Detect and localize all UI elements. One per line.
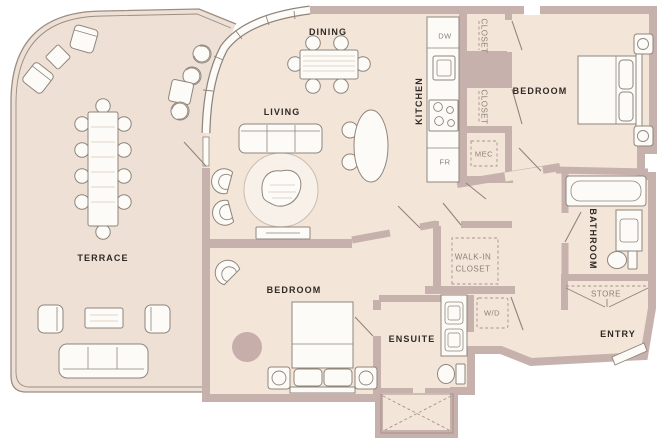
label-dishwasher: DW xyxy=(438,32,452,41)
floor-plan-drawing xyxy=(0,0,670,442)
label-store: STORE xyxy=(591,290,621,299)
kitchen-sink xyxy=(433,56,455,80)
label-living: LIVING xyxy=(264,107,301,117)
dining-table xyxy=(300,50,358,79)
label-closet-upper: CLOSET xyxy=(480,18,489,53)
label-bathroom: BATHROOM xyxy=(588,208,598,269)
label-washer-dryer: W/D xyxy=(484,309,500,318)
floor-plan-page: TERRACE DINING LIVING KITCHEN DW FR CLOS… xyxy=(0,0,670,442)
bedroom-upper-door-gap xyxy=(505,171,543,177)
top-wall-notch xyxy=(524,4,540,15)
kitchen-cooktop xyxy=(429,100,458,131)
label-walk-in-closet: WALK-IN CLOSET xyxy=(444,251,502,274)
bedroom-lower-rug xyxy=(232,332,262,362)
label-bedroom-lower: BEDROOM xyxy=(267,285,322,295)
label-entry: ENTRY xyxy=(600,329,636,339)
label-mec: MEC xyxy=(475,150,493,159)
label-kitchen: KITCHEN xyxy=(414,77,424,125)
ensuite-toilet xyxy=(438,364,466,384)
bed-lower xyxy=(292,302,353,368)
terrace-table xyxy=(88,112,118,226)
label-dining: DINING xyxy=(309,27,347,37)
label-terrace: TERRACE xyxy=(77,253,128,263)
label-closet-lower: CLOSET xyxy=(480,89,489,124)
bathroom-toilet xyxy=(608,251,638,269)
label-ensuite: ENSUITE xyxy=(389,334,436,344)
label-fridge: FR xyxy=(440,158,451,167)
bathtub xyxy=(566,176,646,206)
living-sofa xyxy=(239,124,322,153)
breakfast-table xyxy=(354,110,388,182)
label-bedroom-upper: BEDROOM xyxy=(513,86,568,96)
terrace-door-slab xyxy=(203,137,209,166)
